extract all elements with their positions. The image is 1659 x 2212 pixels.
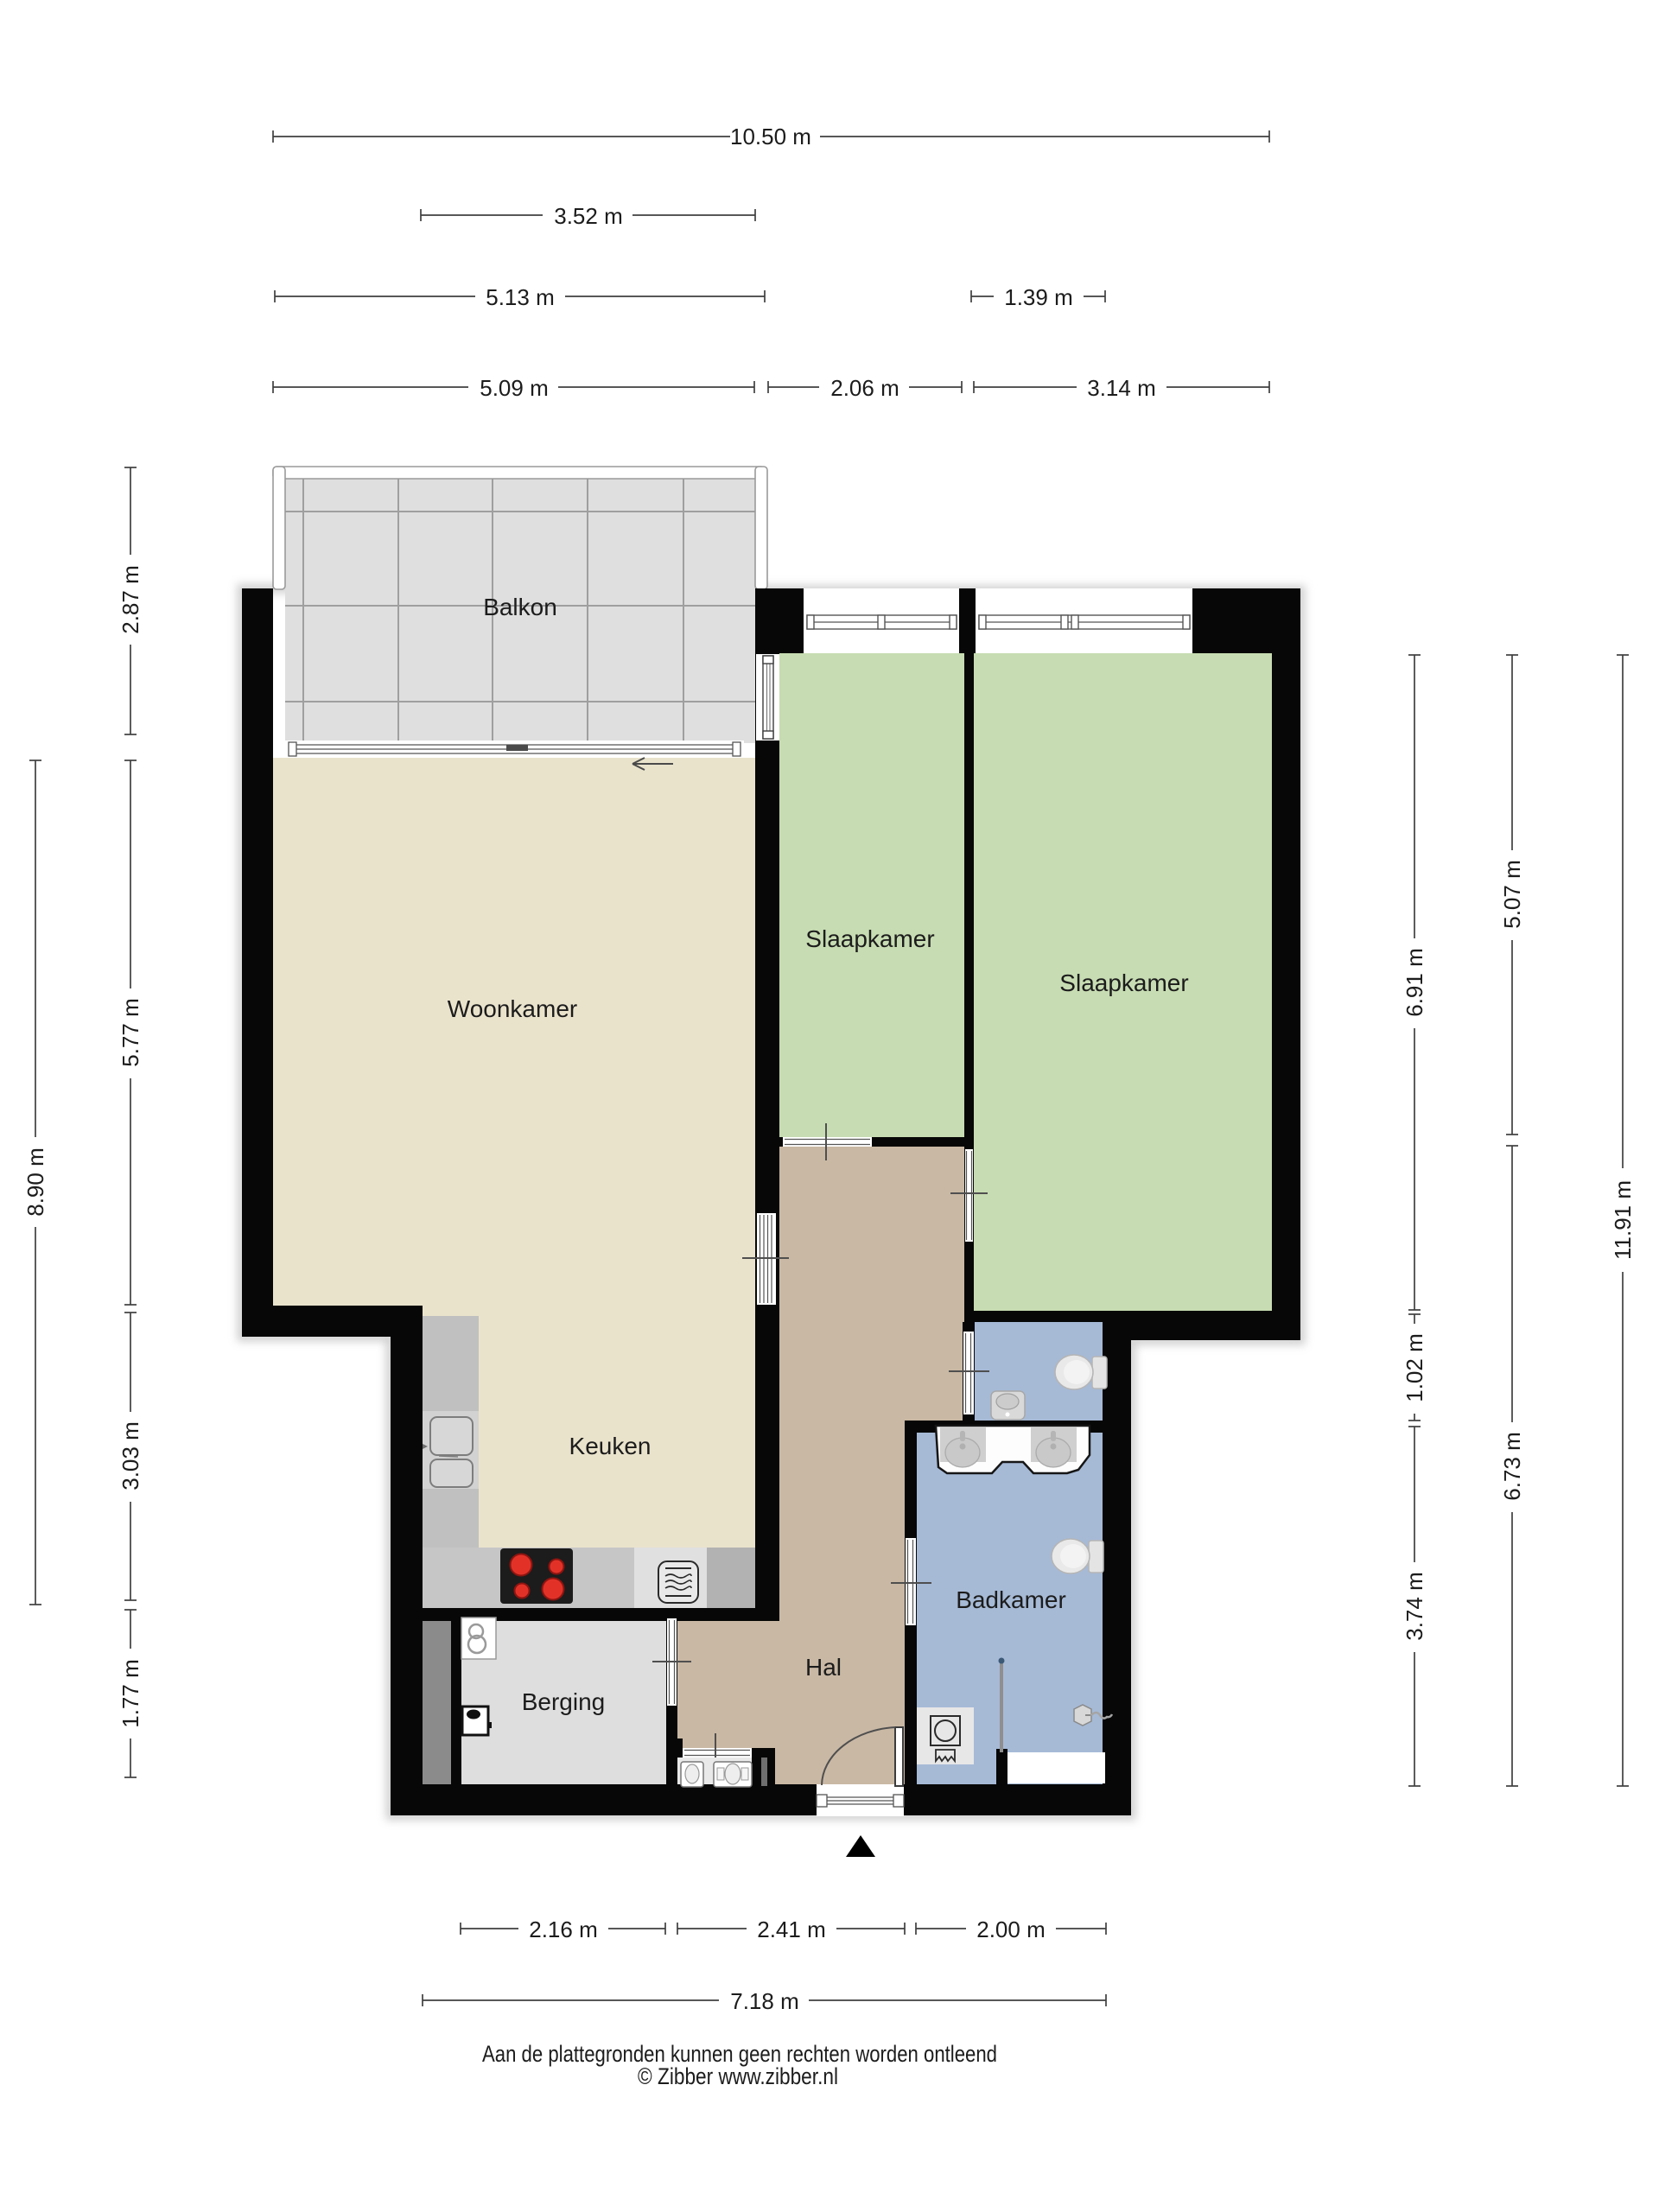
svg-text:Badkamer: Badkamer	[956, 1586, 1066, 1613]
svg-text:6.91 m: 6.91 m	[1402, 948, 1427, 1017]
svg-text:8.90 m: 8.90 m	[22, 1147, 48, 1217]
svg-text:3.03 m: 3.03 m	[118, 1421, 143, 1491]
svg-text:2.41 m: 2.41 m	[757, 1916, 826, 1942]
svg-text:Woonkamer: Woonkamer	[448, 995, 577, 1022]
svg-text:2.00 m: 2.00 m	[976, 1916, 1046, 1942]
svg-text:Berging: Berging	[522, 1688, 606, 1715]
svg-text:© Zibber www.zibber.nl: © Zibber www.zibber.nl	[638, 2063, 838, 2089]
svg-text:Slaapkamer: Slaapkamer	[805, 925, 934, 952]
svg-text:2.87 m: 2.87 m	[118, 565, 143, 634]
svg-text:6.73 m: 6.73 m	[1499, 1432, 1525, 1501]
svg-text:10.50 m: 10.50 m	[730, 124, 811, 149]
svg-text:5.09 m: 5.09 m	[480, 375, 549, 401]
svg-text:2.16 m: 2.16 m	[529, 1916, 598, 1942]
svg-text:5.13 m: 5.13 m	[486, 284, 555, 310]
svg-text:3.74 m: 3.74 m	[1402, 1572, 1427, 1641]
svg-text:Hal: Hal	[805, 1654, 842, 1681]
svg-text:11.91 m: 11.91 m	[1610, 1180, 1636, 1260]
svg-text:5.07 m: 5.07 m	[1499, 860, 1525, 929]
svg-text:2.06 m: 2.06 m	[830, 375, 899, 401]
svg-text:Balkon: Balkon	[483, 594, 557, 620]
svg-text:1.77 m: 1.77 m	[118, 1659, 143, 1728]
svg-text:1.39 m: 1.39 m	[1004, 284, 1073, 310]
svg-text:1.02 m: 1.02 m	[1402, 1333, 1427, 1402]
svg-text:3.52 m: 3.52 m	[554, 203, 623, 229]
svg-text:7.18 m: 7.18 m	[730, 1988, 799, 2014]
svg-text:5.77 m: 5.77 m	[118, 998, 143, 1067]
svg-text:Keuken: Keuken	[569, 1433, 652, 1459]
svg-text:3.14 m: 3.14 m	[1087, 375, 1156, 401]
svg-text:Slaapkamer: Slaapkamer	[1059, 969, 1188, 996]
